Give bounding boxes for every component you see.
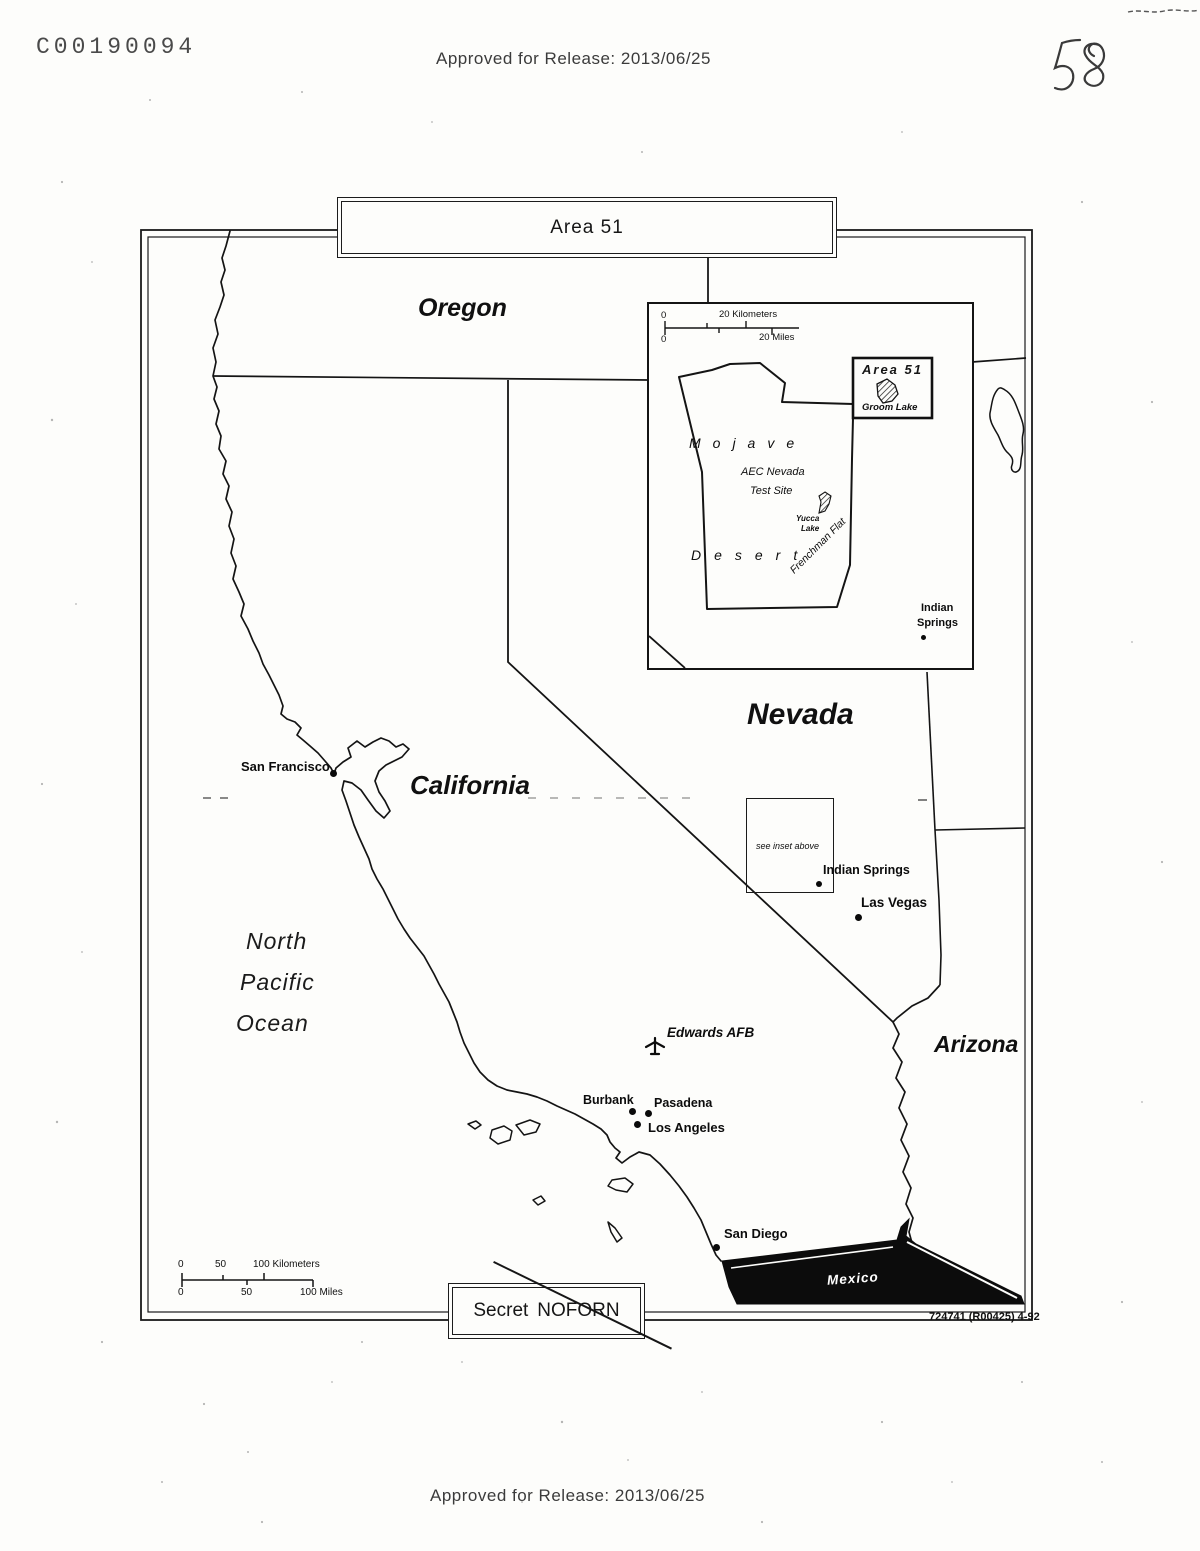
ocean-label-line2: Pacific — [240, 969, 315, 996]
inset-test-site-label: Test Site — [750, 485, 792, 497]
inset-indian-springs-label-line2: Springs — [917, 617, 958, 629]
inset-area51-label: Area 51 — [862, 362, 923, 377]
scale-km-0: 0 — [178, 1259, 184, 1270]
approved-for-release-bottom: Approved for Release: 2013/06/25 — [430, 1486, 705, 1506]
inset-map-box: 0 20 Kilometers 0 20 Miles Area 51 Groom… — [647, 302, 974, 670]
scale-km-100: 100 Kilometers — [253, 1259, 320, 1270]
state-label-nevada: Nevada — [747, 698, 854, 732]
inset-scale-mi-0: 0 — [661, 334, 666, 345]
inset-scale-mi-20: 20 Miles — [759, 332, 794, 343]
see-inset-note: see inset above — [756, 841, 819, 851]
city-label-san-francisco: San Francisco — [241, 759, 330, 774]
inset-scale-km-0: 0 — [661, 310, 666, 321]
scanned-document-page: C00190094 Approved for Release: 2013/06/… — [0, 0, 1200, 1551]
city-dot-las-vegas — [855, 914, 862, 921]
oregon-california-border — [213, 376, 648, 380]
state-label-oregon: Oregon — [418, 294, 507, 323]
city-dot-san-diego — [713, 1244, 720, 1251]
inset-desert-label: Desert — [691, 547, 810, 563]
nevada-arizona-border — [935, 830, 941, 985]
handwritten-page-number-strokes — [1055, 40, 1104, 89]
classification-secret: Secret — [473, 1300, 528, 1322]
map-title: Area 51 — [550, 217, 624, 239]
city-dot-indian-springs — [816, 881, 822, 887]
city-dot-burbank — [629, 1108, 636, 1115]
inset-indian-springs-dot — [921, 635, 926, 640]
inset-state-border-line — [649, 636, 685, 668]
inset-groom-lake-label: Groom Lake — [862, 402, 917, 413]
scan-artifact-line — [1128, 10, 1199, 12]
approved-for-release-top: Approved for Release: 2013/06/25 — [436, 49, 711, 69]
oregon-border-east-segment — [972, 358, 1026, 362]
utah-arizona-border — [935, 828, 1025, 830]
state-label-california: California — [410, 770, 530, 801]
inset-aec-nevada-label: AEC Nevada — [741, 466, 805, 478]
inset-indian-springs-label-line1: Indian — [921, 602, 953, 614]
document-number: C00190094 — [36, 34, 196, 60]
inset-mojave-label: Mojave — [689, 435, 806, 451]
inset-yucca-label: Yucca — [796, 514, 819, 523]
great-salt-lake-outline — [990, 388, 1024, 472]
classification-box: Secret NOFORN — [448, 1283, 645, 1339]
city-label-burbank: Burbank — [583, 1093, 634, 1107]
city-dot-san-francisco — [330, 770, 337, 777]
airfield-label-edwards-afb: Edwards AFB — [667, 1025, 754, 1040]
city-dot-pasadena — [645, 1110, 652, 1117]
city-label-indian-springs: Indian Springs — [823, 863, 910, 877]
scale-mi-100: 100 Miles — [300, 1287, 343, 1298]
scale-mi-50: 50 — [241, 1287, 252, 1298]
yucca-lake-shape — [819, 492, 831, 513]
city-dot-los-angeles — [634, 1121, 641, 1128]
inset-scale-km-20: 20 Kilometers — [719, 309, 777, 320]
city-label-san-diego: San Diego — [724, 1226, 788, 1241]
colorado-river-border — [893, 985, 940, 1243]
nevada-utah-border — [927, 672, 935, 830]
figure-reference-number: 724741 (R00425) 4-92 — [929, 1311, 1040, 1323]
scale-km-50: 50 — [215, 1259, 226, 1270]
state-label-arizona: Arizona — [934, 1031, 1018, 1058]
city-label-los-angeles: Los Angeles — [648, 1120, 725, 1135]
scale-mi-0: 0 — [178, 1287, 184, 1298]
main-scale-bar — [182, 1273, 313, 1287]
ocean-label-line3: Ocean — [236, 1010, 309, 1037]
city-label-pasadena: Pasadena — [654, 1096, 712, 1110]
ocean-label-line1: North — [246, 928, 307, 955]
airport-icon — [646, 1038, 664, 1054]
california-coastline — [213, 231, 721, 1261]
see-inset-box: see inset above — [746, 798, 834, 893]
map-title-box: Area 51 — [337, 197, 837, 258]
city-label-las-vegas: Las Vegas — [861, 895, 927, 910]
inset-lake-label: Lake — [801, 524, 819, 533]
